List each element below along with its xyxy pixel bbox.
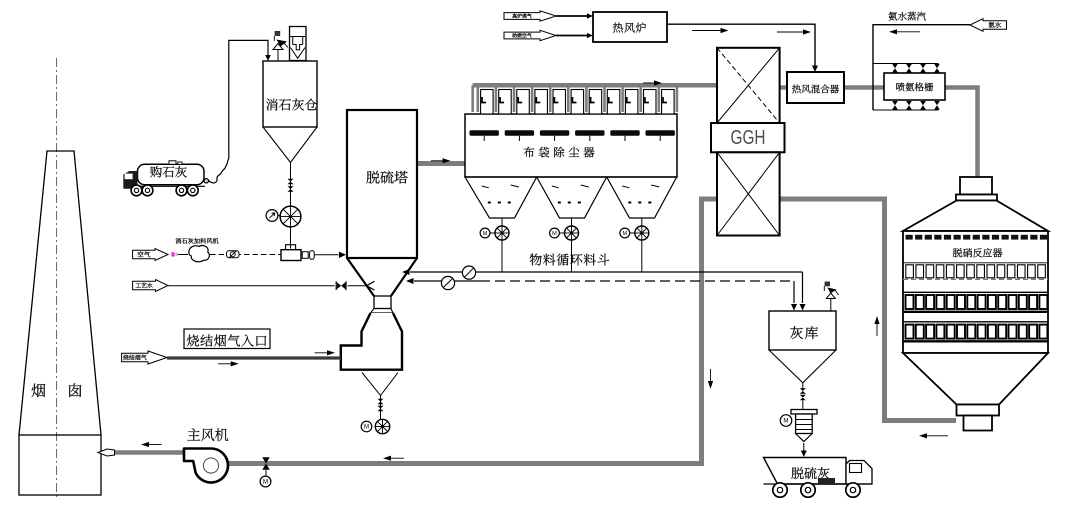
svg-text:M: M	[783, 418, 788, 425]
svg-text:M: M	[622, 231, 627, 237]
svg-text:M: M	[483, 231, 488, 237]
svg-text:GGH: GGH	[731, 127, 766, 149]
svg-text:M: M	[552, 231, 557, 237]
svg-text:M: M	[263, 479, 268, 486]
svg-text:M: M	[364, 425, 369, 431]
